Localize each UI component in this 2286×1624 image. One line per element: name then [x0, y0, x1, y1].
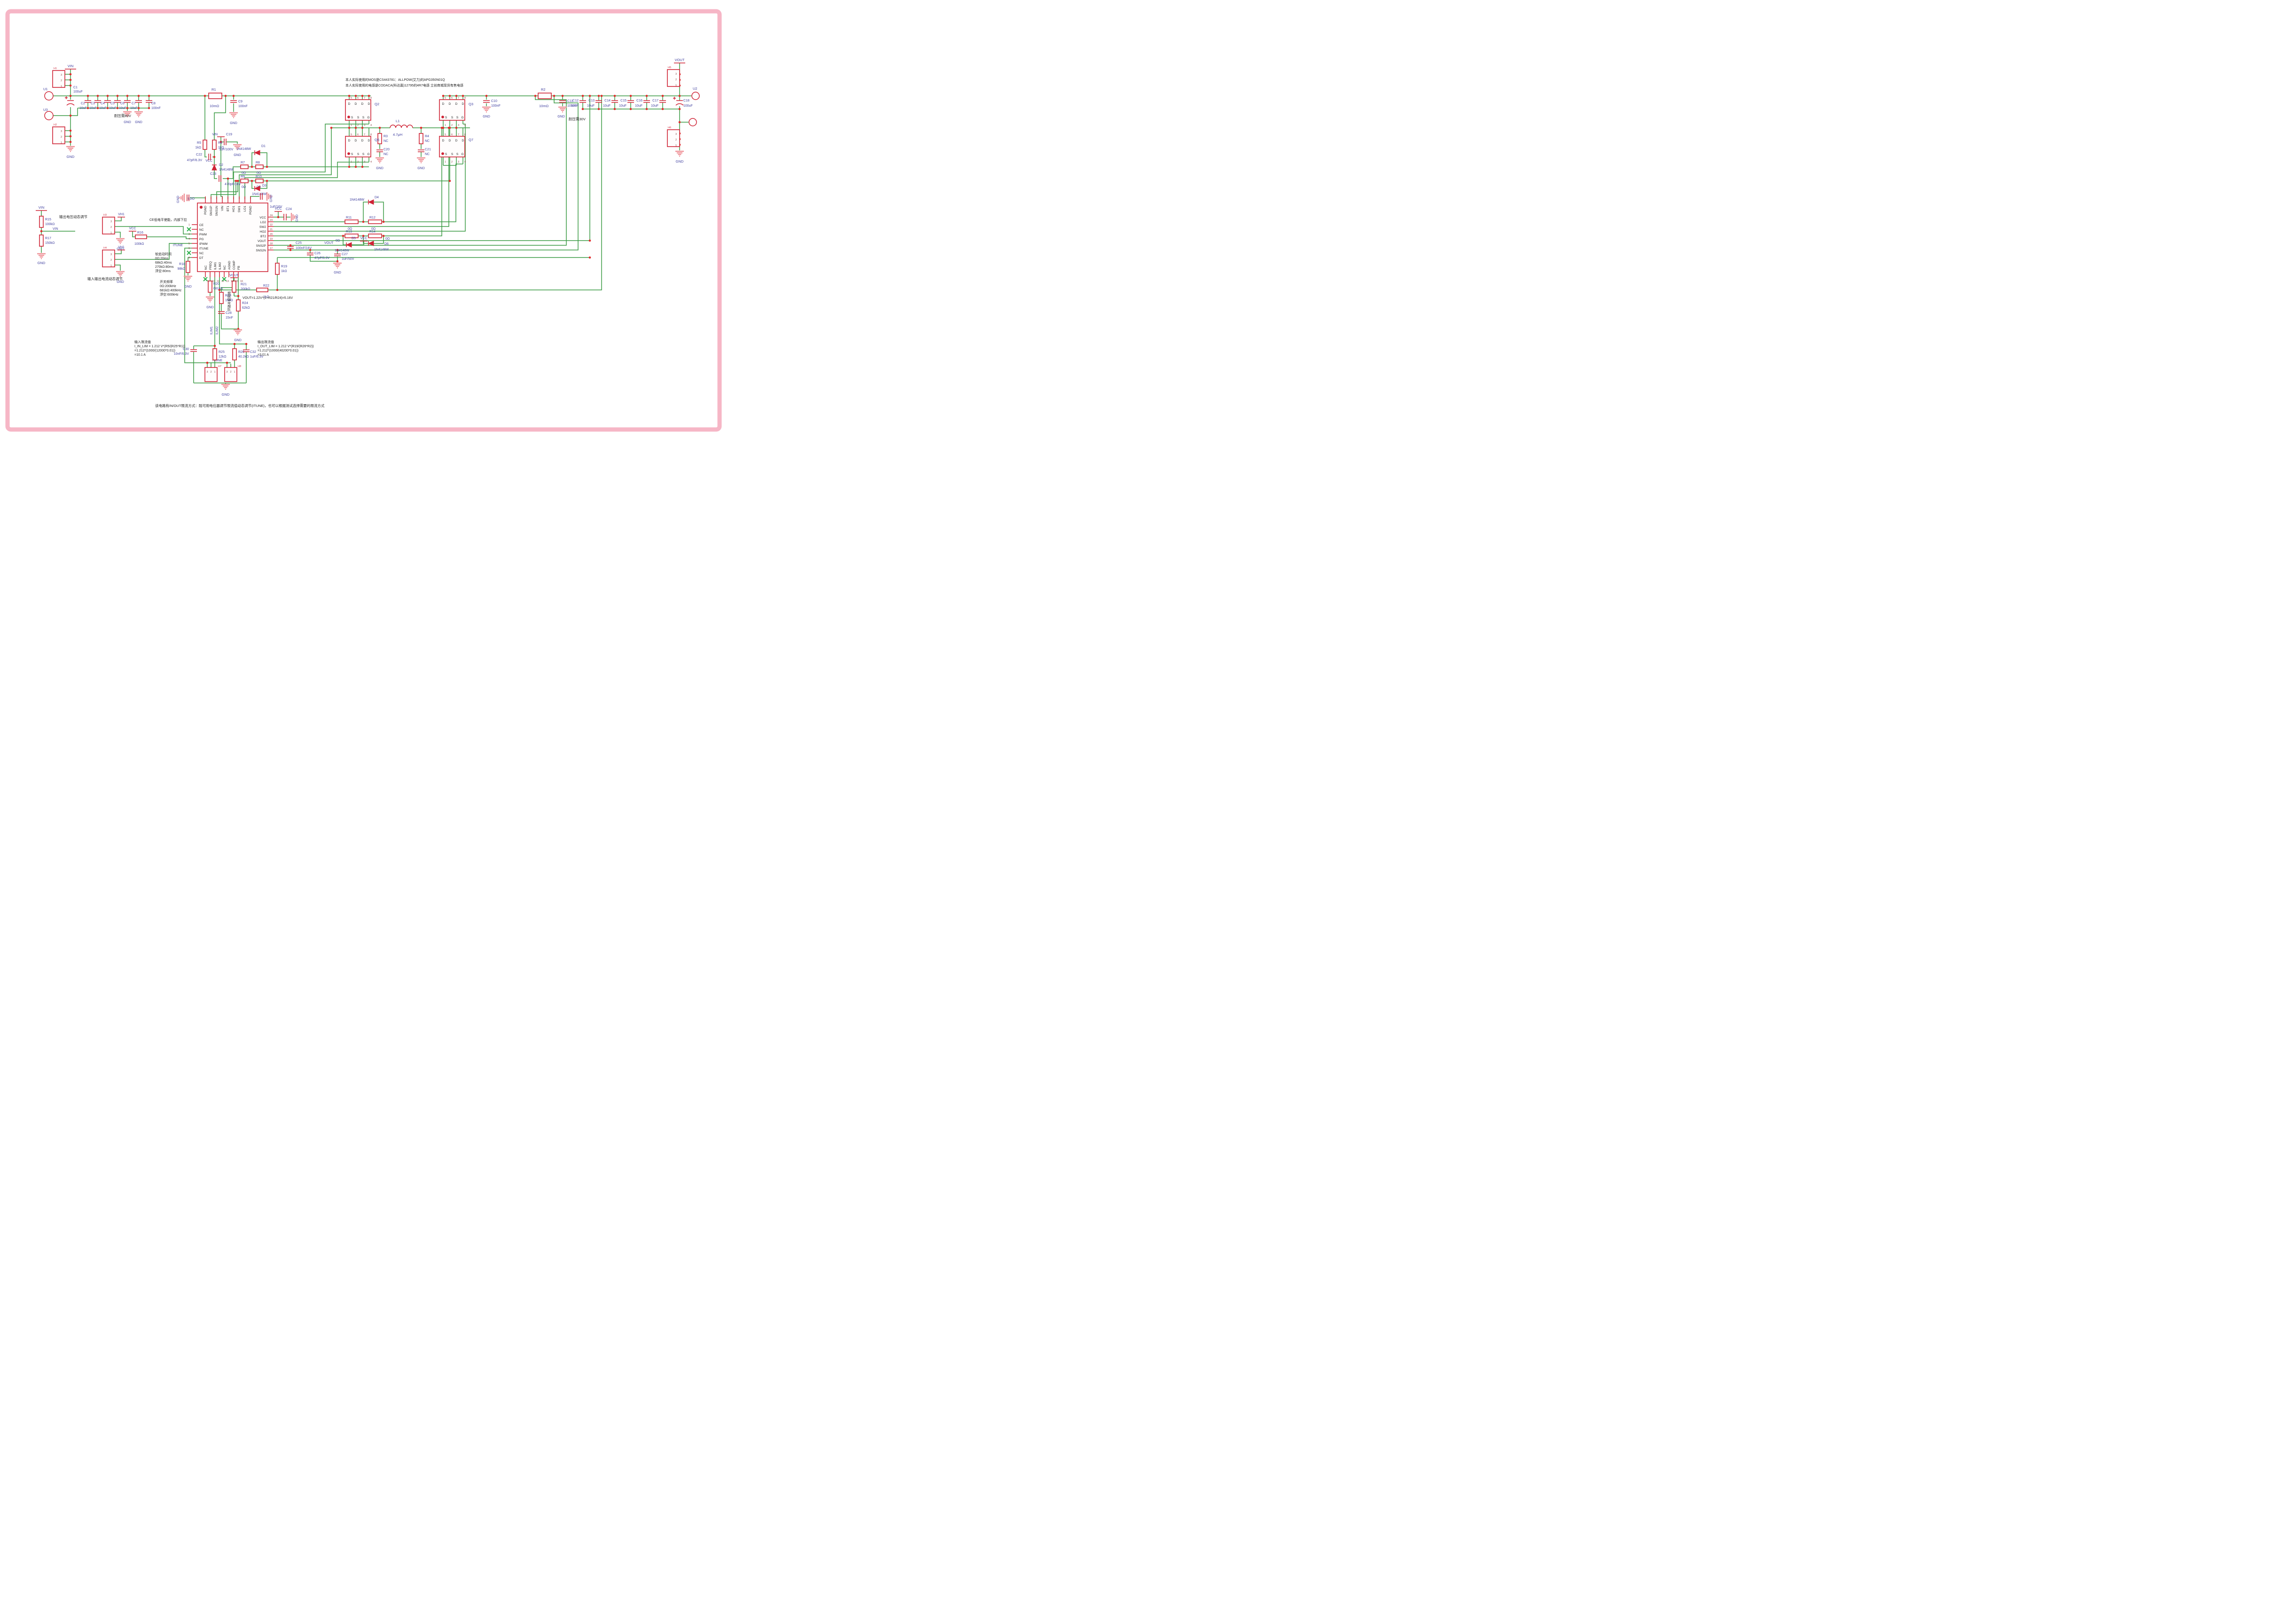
svg-text:2: 2: [451, 161, 453, 164]
itune-net-label: ITUNE: [173, 244, 183, 247]
svg-text:6: 6: [357, 97, 359, 100]
vout-adjust-note: 输出电压动态调节: [59, 214, 87, 219]
d6-val: 1N4148W: [374, 248, 389, 251]
ilim1-net-label: ILIM1: [210, 326, 213, 335]
svg-text:ITUNE: ITUNE: [199, 247, 209, 250]
svg-text:D: D: [361, 139, 364, 142]
u2-label: U2: [693, 86, 697, 91]
r15-val: 100kΩ: [45, 223, 55, 226]
svg-text:5: 5: [445, 133, 446, 136]
gnd-label: GND: [67, 155, 75, 159]
svg-text:IPWM: IPWM: [199, 242, 208, 246]
withstand-30v-note: 耐压需30V: [569, 117, 586, 121]
gnd-label-rotated: GND: [177, 195, 180, 203]
c24-val: 1uF/16V: [270, 205, 282, 209]
svg-text:270kΩ:80ms: 270kΩ:80ms: [155, 265, 174, 269]
resistor-r20: [208, 281, 212, 292]
q3-label: Q3: [469, 102, 473, 106]
svg-text:D: D: [449, 102, 451, 106]
svg-text:G: G: [367, 116, 369, 119]
svg-text:1: 1: [188, 224, 190, 226]
c23-ref: C23: [210, 172, 216, 176]
svg-text:D: D: [348, 102, 351, 106]
svg-text:HO1: HO1: [232, 206, 235, 212]
connector-h5-ref: H5: [668, 66, 671, 69]
svg-text:9: 9: [207, 280, 209, 283]
svg-text:4: 4: [464, 161, 466, 164]
svg-text:3: 3: [458, 124, 459, 127]
u3-label: U3: [43, 108, 48, 112]
svg-text:1: 1: [445, 161, 446, 164]
svg-text:8: 8: [464, 97, 466, 100]
connector-h6: [667, 130, 680, 147]
svg-text:SW1: SW1: [238, 206, 241, 212]
c18-val: 100uF: [683, 104, 693, 108]
svg-text:S: S: [362, 116, 365, 119]
svg-text:21: 21: [270, 228, 273, 231]
mos-note-1: 本人实际使用的MOS是CS443781：ALLPOW(艾力)的APG350N01…: [345, 78, 445, 82]
svg-text:D: D: [455, 139, 458, 142]
svg-text:13: 13: [226, 280, 229, 283]
svg-text:NC: NC: [199, 252, 204, 255]
r7-ref: R7: [241, 161, 245, 164]
r3-val: NC: [384, 140, 388, 143]
resistor-r9: [241, 179, 248, 183]
conn-pin-num: 3: [110, 253, 112, 256]
svg-text:3: 3: [364, 124, 365, 127]
svg-text:浮空:600kHz: 浮空:600kHz: [160, 292, 179, 297]
vout-net-label: VOUT: [324, 242, 334, 245]
r8-ref: R8: [256, 161, 260, 164]
c13-val: 10uF: [587, 104, 595, 108]
svg-text:VOUT: VOUT: [258, 240, 266, 243]
svg-text:7: 7: [458, 97, 459, 100]
l1-ref: L1: [396, 119, 399, 123]
d1-val: 1N4148W: [236, 148, 251, 151]
c3-ref: C3: [91, 102, 95, 105]
svg-text:2: 2: [357, 124, 359, 127]
svg-text:5: 5: [188, 242, 190, 245]
conn-pin-num: 1: [234, 371, 235, 374]
c8-val: 100nF: [151, 107, 161, 110]
svg-text:S: S: [351, 116, 353, 119]
svg-text:PGND: PGND: [249, 206, 252, 215]
c1-val: 100uF: [73, 90, 83, 94]
svg-text:D: D: [368, 139, 370, 142]
c2-ref: C2: [81, 102, 85, 105]
c22-ref: C22: [196, 153, 202, 156]
c8-ref: C8: [151, 102, 156, 105]
conn-pin-num: 3: [675, 133, 677, 136]
conn-pin-num: 2: [210, 371, 211, 374]
c12-val: 10uF: [571, 104, 579, 108]
svg-text:1: 1: [351, 124, 352, 127]
current-adjust-note: 输入输出电流动态调节: [87, 276, 123, 281]
svg-text:NC: NC: [199, 228, 204, 232]
c30-ref: C30: [183, 348, 189, 351]
svg-text:G: G: [367, 153, 369, 156]
gnd-label: GND: [222, 392, 230, 397]
conn-pin-num: 2: [675, 78, 677, 81]
r19-val: 1kΩ: [281, 270, 287, 273]
svg-text:S: S: [357, 116, 360, 119]
svg-text:S: S: [357, 153, 360, 156]
q7-label: Q7: [469, 138, 473, 142]
frequency-note: 开关频率0Ω:200kHz681kΩ:400kHz浮空:600kHz: [160, 280, 182, 297]
c4-val: 10uF: [99, 107, 107, 110]
resistor-r8: [256, 165, 263, 169]
vin-net-label: VIN: [53, 227, 58, 231]
r21-val: 200kΩ: [241, 288, 250, 291]
svg-text:D: D: [455, 102, 458, 106]
c26-ref: C26: [314, 252, 321, 255]
r4-val: NC: [425, 140, 430, 143]
resistor-r26: [233, 349, 236, 360]
resistor-r18: [186, 261, 190, 273]
l1-val: 4.7μH: [393, 133, 402, 137]
resistor-r15: [39, 216, 43, 227]
comp-note-rotated: 环路补偿网络: [227, 291, 231, 311]
connector-h4-ref: H4: [103, 247, 107, 250]
svg-text:S: S: [456, 116, 459, 119]
bottom-note: 该电路有IN/OUT限流方式：既可用电位器调节限流值动态调节(ITUNE)，也可…: [155, 403, 325, 408]
resistor-r5: [203, 140, 207, 149]
gnd-label: GND: [38, 261, 46, 265]
c18-ref: C18: [683, 99, 689, 102]
svg-text:4: 4: [370, 124, 372, 127]
port-u3: [45, 111, 53, 120]
svg-text:5: 5: [445, 97, 446, 100]
mos-note-2: 本人实际使用的电感是CODACA(科达嘉)12795的4R7电感 立创商城现货有…: [345, 83, 463, 87]
c22-val: 47pF/6.3V: [187, 159, 203, 162]
gnd-label: GND: [483, 115, 490, 118]
port-u1: [45, 92, 53, 100]
svg-text:=10.1 A: =10.1 A: [134, 353, 146, 357]
svg-text:23: 23: [270, 219, 273, 222]
d2-val: 1N4148W: [219, 168, 234, 172]
c28-val: 15nF: [226, 316, 233, 320]
r5-ref: R5: [197, 141, 201, 145]
svg-text:浮空:80ms: 浮空:80ms: [155, 269, 171, 273]
gnd-label: GND: [117, 281, 124, 284]
svg-text:PG: PG: [199, 238, 204, 241]
svg-text:5: 5: [351, 97, 352, 100]
u1-label: U1: [43, 87, 48, 91]
vh1-net-label: VH1: [118, 246, 125, 249]
d3-val: 1N4148W: [252, 193, 267, 196]
gnd-label-rotated: GND: [296, 214, 299, 222]
vcc-net-label: VCC: [129, 227, 136, 230]
c17-ref: C17: [652, 99, 658, 102]
gnd-label: GND: [184, 285, 192, 289]
conn-pin-num: 3: [61, 130, 62, 133]
connector-h1-ref: H1: [54, 67, 57, 70]
conn-pin-num: 1: [675, 84, 677, 87]
svg-text:S: S: [445, 116, 447, 119]
c13-ref: C13: [588, 99, 595, 102]
svg-text:68kΩ:40ms: 68kΩ:40ms: [155, 261, 172, 265]
svg-text:SNS2P: SNS2P: [256, 244, 266, 248]
gnd-label: GND: [230, 122, 237, 125]
svg-text:D: D: [355, 102, 357, 106]
resistor-r12: [368, 220, 382, 224]
svg-text:I_IN_LIM = 1.212 V*(R5/(R25*R1: I_IN_LIM = 1.212 V*(R5/(R25*R1)): [134, 345, 185, 348]
conn-pin-num: 2: [61, 136, 62, 139]
r18-ref: R18: [179, 263, 185, 266]
svg-text:24: 24: [270, 214, 273, 217]
r10-ref: R10: [256, 175, 262, 179]
r3-ref: R3: [384, 135, 388, 138]
r1-val: 10mΩ: [210, 104, 219, 108]
resistor-r22: [257, 288, 268, 292]
q6-label: Q6: [375, 138, 379, 142]
ic-pin1-marker: [200, 206, 202, 208]
svg-text:SNS1P: SNS1P: [210, 206, 213, 216]
svg-text:SNS1N: SNS1N: [215, 206, 219, 216]
c5-ref: C5: [110, 102, 115, 105]
conn-pin-num: 1: [110, 232, 112, 234]
resistor-r2: [538, 93, 551, 99]
svg-text:ILIM2: ILIM2: [219, 262, 222, 270]
r16-val: 100kΩ: [134, 242, 144, 246]
resistor-r24: [236, 300, 240, 311]
resistor-r19: [275, 263, 279, 274]
c19-ref: C19: [226, 133, 232, 136]
r2-val: 10mΩ: [539, 104, 549, 108]
svg-text:2: 2: [357, 161, 359, 164]
conn-pin-num: 3: [61, 74, 62, 77]
gnd-label: GND: [135, 121, 142, 124]
d2-ref: D2: [219, 164, 223, 167]
vout-net-label: VOUT: [229, 274, 239, 277]
svg-text:S: S: [362, 153, 365, 156]
resistor-r10: [256, 179, 263, 183]
c9-val: 100nF: [238, 105, 248, 108]
ilim2-net-label: ILIM2: [216, 326, 219, 335]
c5-val: 10uF: [109, 107, 117, 110]
r2-ref: R2: [541, 87, 546, 92]
connector-h1: [53, 70, 65, 87]
svg-text:S: S: [351, 153, 353, 156]
c7-val: 10uF: [130, 107, 138, 110]
r16-ref: R16: [137, 231, 143, 234]
svg-text:8: 8: [370, 133, 372, 136]
svg-text:6: 6: [357, 133, 359, 136]
svg-text:LO2: LO2: [260, 221, 266, 224]
conn-pin-num: 2: [230, 371, 231, 374]
conn-pin-num: 3: [226, 371, 227, 374]
connector-h7: [205, 367, 217, 382]
resistor-r7: [241, 165, 248, 169]
svg-text:6: 6: [188, 247, 190, 250]
conn-pin-num: 1: [675, 144, 677, 147]
svg-text:D: D: [368, 102, 370, 106]
conn-pin-num: 1: [110, 265, 112, 267]
c24-ref: C24: [286, 208, 292, 211]
c25-val: 100nF/16V: [296, 247, 312, 250]
c9-ref: C9: [238, 100, 243, 103]
svg-text:I_OUT_LIM = 1.212 V*(R19/(R26*: I_OUT_LIM = 1.212 V*(R19/(R26*R2)): [258, 345, 314, 348]
svg-text:22: 22: [270, 224, 273, 226]
svg-text:SW2: SW2: [259, 226, 266, 229]
svg-text:19: 19: [270, 238, 273, 241]
r21-ref: R21: [241, 283, 247, 286]
c26-val: 47pF/6.3V: [314, 257, 330, 260]
connector-h4: [102, 250, 115, 267]
svg-text:S: S: [451, 153, 454, 156]
svg-text:D: D: [442, 102, 445, 106]
svg-text:4: 4: [464, 124, 466, 127]
svg-text:NC: NC: [223, 265, 227, 270]
resistor-r4: [419, 133, 423, 144]
svg-text:D: D: [361, 102, 364, 106]
connector-h5: [667, 70, 680, 86]
r22-ref: R22: [263, 284, 269, 288]
c21-ref: C21: [425, 148, 431, 151]
svg-text:681kΩ:400kHz: 681kΩ:400kHz: [160, 289, 182, 292]
svg-text:软启动时间: 软启动时间: [155, 252, 172, 256]
svg-text:14: 14: [231, 280, 234, 283]
gnd-label: GND: [234, 339, 242, 342]
c10-val: 100nF: [491, 104, 501, 108]
svg-text:CE: CE: [199, 224, 204, 227]
r5-val: 1kΩ: [195, 146, 201, 149]
c28-ref: C28: [226, 312, 232, 315]
svg-text:10: 10: [212, 280, 215, 283]
resistor-r23: [219, 292, 223, 304]
svg-text:15: 15: [235, 280, 238, 283]
conn-pin-num: 2: [675, 139, 677, 141]
svg-text:ILIM1: ILIM1: [214, 262, 217, 270]
resistor-r16: [135, 235, 147, 239]
c6-ref: C6: [120, 102, 125, 105]
svg-text:3: 3: [364, 161, 365, 164]
svg-text:3: 3: [458, 161, 459, 164]
conn-pin-num: 1: [61, 141, 62, 144]
r24-ref: R24: [242, 302, 248, 305]
svg-text:1: 1: [445, 124, 446, 127]
svg-text:FREQ: FREQ: [209, 261, 212, 270]
svg-text:D: D: [348, 139, 351, 142]
r4-ref: R4: [425, 135, 429, 138]
svg-text:输入限流值: 输入限流值: [134, 340, 151, 344]
r24-val: 62kΩ: [242, 306, 250, 310]
svg-text:BT1: BT1: [227, 206, 230, 211]
svg-text:DT: DT: [199, 257, 204, 260]
inductor-l1: L1 4.7μH: [390, 119, 413, 137]
svg-text:HO2: HO2: [260, 230, 266, 234]
resistor-r17: [39, 235, 43, 246]
svg-text:D: D: [355, 139, 357, 142]
gnd-label: GND: [206, 306, 214, 309]
schematic-canvas: GND GND GND GND GND GND GND GND GND GND …: [0, 0, 727, 516]
conn-pin-num: 2: [61, 79, 62, 82]
gnd-label: GND: [557, 115, 565, 118]
svg-text:VCC: VCC: [259, 216, 266, 219]
svg-text:=1.212*(1000/(12000*0.01)): =1.212*(1000/(12000*0.01)): [134, 349, 175, 352]
d1-ref: D1: [261, 145, 266, 148]
svg-text:S: S: [445, 153, 447, 156]
output-limit-note: 输出限流值I_OUT_LIM = 1.212 V*(R19/(R26*R2))=…: [258, 340, 314, 357]
r17-ref: R17: [45, 237, 51, 240]
c17-val: 10uF: [651, 104, 658, 108]
svg-text:16: 16: [240, 280, 243, 283]
c16-ref: C16: [636, 99, 642, 102]
r20-ref: R20: [213, 282, 219, 286]
svg-text:6: 6: [451, 97, 453, 100]
mosfets: DDDD SSSG 5678 1234 Q2 DDDD SSSG 5678 12…: [345, 97, 473, 164]
svg-text:6: 6: [451, 133, 453, 136]
r9-val: 0Ω: [242, 186, 246, 189]
r1-ref: R1: [211, 87, 216, 92]
svg-text:0Ω:20ms: 0Ω:20ms: [155, 257, 169, 260]
conn-pin-num: 2: [110, 259, 112, 262]
gnd-label: GND: [417, 167, 425, 170]
c6-val: 10uF: [119, 107, 126, 110]
c4-ref: C4: [101, 102, 105, 105]
c32-ref: C32: [250, 351, 256, 354]
resistor-r1: [209, 93, 222, 99]
svg-text:开关频率: 开关频率: [160, 280, 173, 284]
port-u2: [692, 92, 699, 100]
c10-ref: C10: [491, 100, 497, 103]
cap-c28: C2815nF: [218, 312, 233, 320]
ce-note: CE低电平使能，内部下拉: [149, 218, 187, 222]
gnd-label: GND: [676, 159, 684, 164]
c1-ref: C1: [73, 86, 78, 89]
svg-text:11: 11: [217, 280, 219, 283]
c19-val: 1uF/100V: [219, 148, 234, 151]
svg-text:LO1: LO1: [243, 206, 247, 212]
vout-formula: VOUT=1.22V*(1+R21/R24)=5.16V: [243, 297, 293, 300]
c27-ref: C27: [342, 253, 348, 256]
svg-text:S: S: [456, 153, 459, 156]
gnd-label: GND: [376, 167, 384, 170]
r13-val: 0Ω: [336, 239, 340, 242]
svg-text:输出限流值: 输出限流值: [258, 340, 274, 344]
svg-text:S: S: [451, 116, 454, 119]
cap-c24: 1uF/16VC24: [270, 205, 292, 220]
resistor-r6: [212, 140, 216, 149]
r14-ref: R14: [369, 230, 376, 234]
r7-val: 0Ω: [242, 172, 246, 175]
c15-val: 10uF: [619, 104, 626, 108]
d6-ref: D6: [384, 242, 389, 246]
svg-text:G: G: [461, 116, 463, 119]
svg-text:4: 4: [188, 238, 190, 241]
c16-val: 10uF: [635, 104, 642, 108]
r8-val: 0Ω: [257, 172, 261, 175]
c25-ref: C25: [296, 242, 302, 245]
svg-text:NC: NC: [204, 265, 208, 270]
q2-label: Q2: [375, 102, 379, 106]
svg-text:D: D: [462, 139, 464, 142]
svg-text:VIN: VIN: [221, 206, 224, 211]
svg-text:=3.01 A: =3.01 A: [258, 353, 269, 357]
svg-text:PGND: PGND: [204, 206, 207, 215]
c23-val: 470pF/16V: [225, 183, 241, 186]
r19-ref: R19: [281, 265, 287, 268]
main-ic: CE1 NC2 PWM3 PG4 IPWM5 ITUNE6 NC7 DT8 VC…: [187, 193, 274, 283]
vin-flag-label: VIN: [68, 64, 74, 68]
r20-val: 681kΩ: [213, 287, 223, 290]
r26-val: 40.2kΩ: [238, 355, 249, 359]
connector-h2-ref: H2: [54, 124, 57, 126]
withstand-80v-note: 耐压需80V: [114, 113, 131, 118]
conn-pin-num: 3: [675, 73, 677, 76]
c12-ref: C12: [572, 99, 579, 102]
r12-ref: R12: [369, 216, 376, 219]
